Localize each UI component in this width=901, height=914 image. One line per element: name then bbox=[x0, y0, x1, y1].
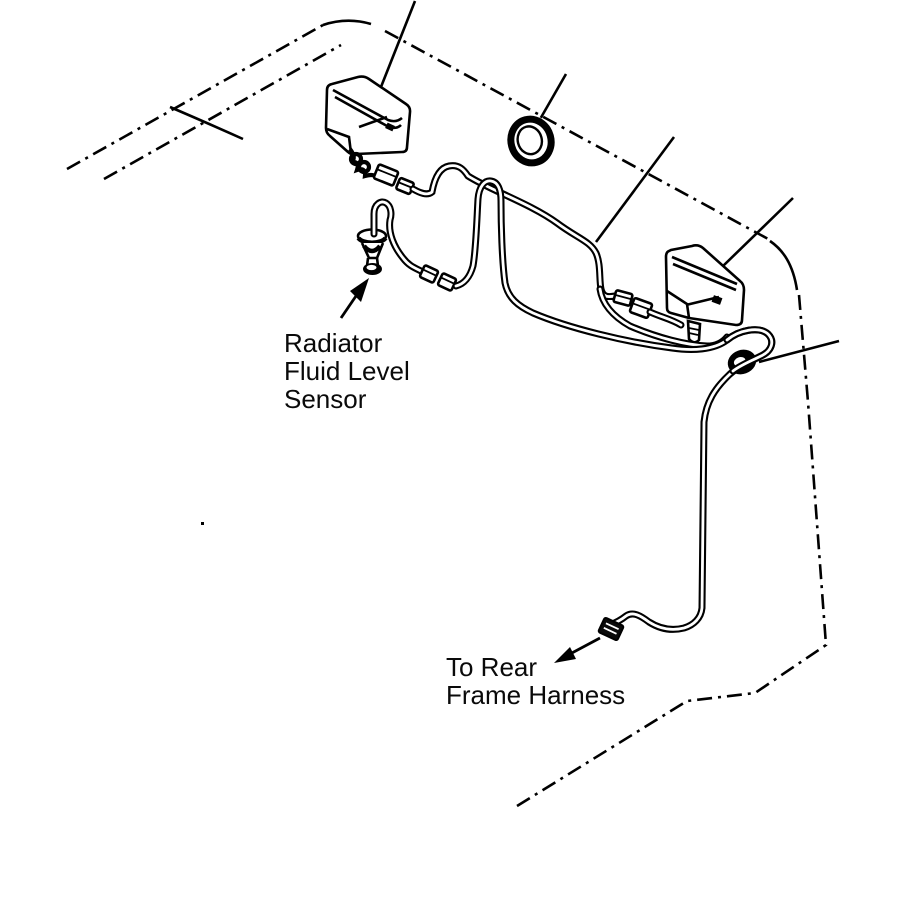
hood-edge-right bbox=[517, 295, 826, 806]
wire-bundle-outer bbox=[456, 181, 772, 629]
wiring-harness-diagram: Radiator Fluid Level Sensor To Rear Fram… bbox=[0, 0, 901, 914]
arrow-to-sensor bbox=[341, 278, 369, 318]
label-line: Radiator bbox=[284, 329, 410, 357]
hood-corner-right bbox=[770, 241, 797, 290]
work-lamp-left bbox=[326, 77, 410, 155]
connector-lamp-left-a bbox=[373, 164, 398, 186]
label-line: Frame Harness bbox=[446, 681, 625, 709]
hood-edge-top bbox=[385, 31, 770, 240]
label-radiator-fluid-level-sensor: Radiator Fluid Level Sensor bbox=[284, 329, 410, 413]
hood-edge-lower-left bbox=[104, 45, 341, 179]
leader-lamp-left bbox=[379, 1, 415, 92]
label-line: To Rear bbox=[446, 653, 625, 681]
leader-grommet-top bbox=[539, 74, 566, 121]
label-line: Fluid Level bbox=[284, 357, 410, 385]
cowl-seam-line bbox=[170, 107, 243, 139]
sensor-nut-highlight bbox=[367, 265, 377, 270]
leader-lamp-right bbox=[722, 198, 793, 267]
diagram-canvas bbox=[0, 0, 901, 914]
stray-dot bbox=[201, 522, 204, 525]
label-line: Sensor bbox=[284, 385, 410, 413]
hood-edge-upper-left bbox=[67, 25, 323, 169]
grommet-top bbox=[501, 110, 561, 173]
hood-corner-top bbox=[323, 21, 371, 25]
connector-sensor-a bbox=[419, 265, 438, 283]
connector-lamp-right-a bbox=[613, 290, 633, 306]
label-to-rear-frame-harness: To Rear Frame Harness bbox=[446, 653, 625, 709]
